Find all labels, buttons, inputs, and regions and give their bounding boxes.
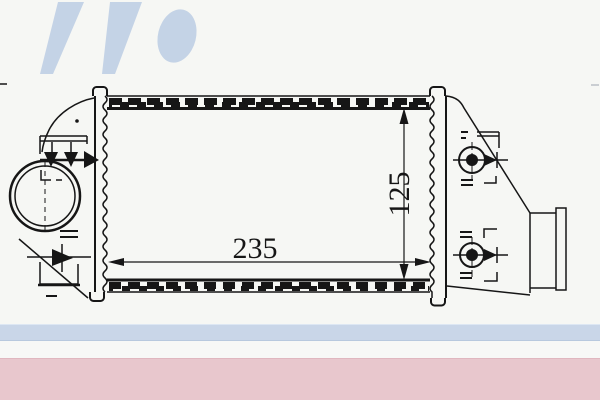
- brand-logo-watermark-icon: [40, 2, 202, 74]
- left-header-plate: [90, 87, 107, 301]
- footer-pink-bar: [0, 358, 600, 400]
- left-tank: [10, 98, 99, 298]
- dimension-height: 125: [383, 108, 416, 280]
- dimension-width: 235: [108, 232, 431, 266]
- weld-arrow-icon: [84, 151, 99, 168]
- catalog-image: 235 125: [0, 0, 600, 400]
- watermark-stroke-2: [102, 2, 142, 74]
- footer-gap: [0, 341, 600, 358]
- dimension-height-label: 125: [383, 172, 416, 217]
- watermark-stroke-3: [152, 5, 202, 67]
- watermark-stroke-1: [40, 2, 84, 74]
- arrow-right-icon: [415, 258, 431, 266]
- right-tank: [446, 96, 566, 295]
- right-header-plate: [430, 87, 446, 306]
- core-top-edge: [107, 96, 430, 109]
- mounting-boss-lower: [453, 229, 508, 281]
- outlet-flange: [556, 208, 566, 290]
- arrow-down-icon: [400, 264, 409, 280]
- arrow-up-icon: [400, 108, 409, 124]
- spot-mark: [75, 119, 79, 123]
- arrow-left-icon: [108, 258, 124, 266]
- dimension-width-label: 235: [233, 232, 278, 265]
- intercooler-drawing: 235 125: [10, 87, 566, 306]
- footer-blue-bar: [0, 324, 600, 341]
- core-bottom-edge: [107, 280, 430, 292]
- mounting-boss-upper: [453, 132, 508, 185]
